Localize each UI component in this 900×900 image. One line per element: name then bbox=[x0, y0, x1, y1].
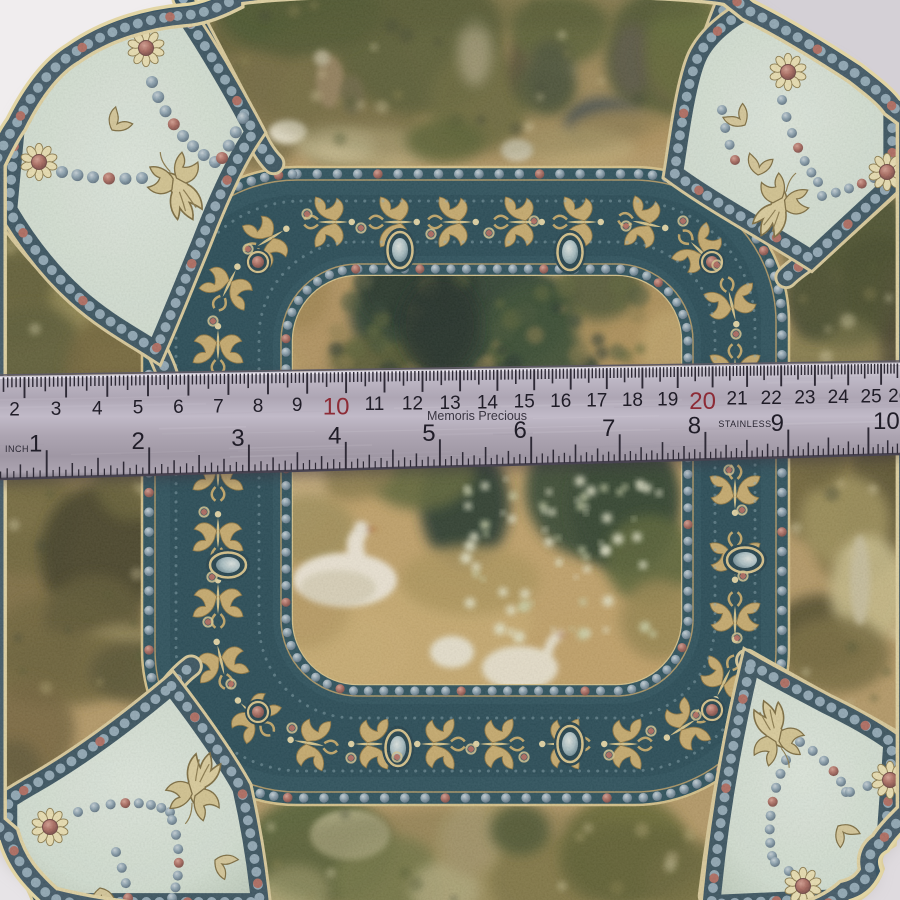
svg-text:3: 3 bbox=[231, 425, 244, 452]
svg-text:11: 11 bbox=[365, 394, 385, 415]
svg-text:12: 12 bbox=[402, 393, 423, 414]
svg-text:21: 21 bbox=[727, 388, 748, 409]
svg-text:9: 9 bbox=[771, 410, 784, 437]
svg-text:6: 6 bbox=[173, 397, 184, 418]
svg-text:10: 10 bbox=[323, 394, 350, 421]
svg-text:8: 8 bbox=[253, 396, 264, 417]
svg-text:24: 24 bbox=[828, 387, 850, 408]
svg-text:INCH: INCH bbox=[5, 444, 29, 454]
svg-text:22: 22 bbox=[761, 388, 782, 409]
svg-text:20: 20 bbox=[689, 388, 716, 415]
svg-text:5: 5 bbox=[133, 398, 144, 419]
svg-text:17: 17 bbox=[586, 391, 607, 412]
svg-text:5: 5 bbox=[422, 420, 435, 447]
svg-text:9: 9 bbox=[292, 395, 303, 416]
svg-text:19: 19 bbox=[657, 390, 678, 411]
svg-text:4: 4 bbox=[92, 398, 103, 419]
svg-text:7: 7 bbox=[213, 396, 224, 417]
svg-text:2: 2 bbox=[132, 428, 145, 455]
svg-text:18: 18 bbox=[622, 390, 643, 411]
svg-text:26: 26 bbox=[888, 386, 900, 407]
svg-text:3: 3 bbox=[51, 399, 62, 420]
svg-text:16: 16 bbox=[550, 391, 571, 412]
svg-text:10: 10 bbox=[873, 408, 900, 435]
svg-text:2: 2 bbox=[9, 400, 20, 421]
svg-text:STAINLESS: STAINLESS bbox=[718, 419, 771, 429]
svg-text:7: 7 bbox=[602, 415, 615, 442]
svg-text:4: 4 bbox=[328, 422, 341, 449]
svg-text:1: 1 bbox=[29, 431, 42, 458]
svg-text:8: 8 bbox=[688, 412, 701, 439]
svg-text:25: 25 bbox=[861, 386, 882, 407]
svg-text:Memoris Precious: Memoris Precious bbox=[427, 409, 527, 423]
svg-text:23: 23 bbox=[794, 387, 815, 408]
